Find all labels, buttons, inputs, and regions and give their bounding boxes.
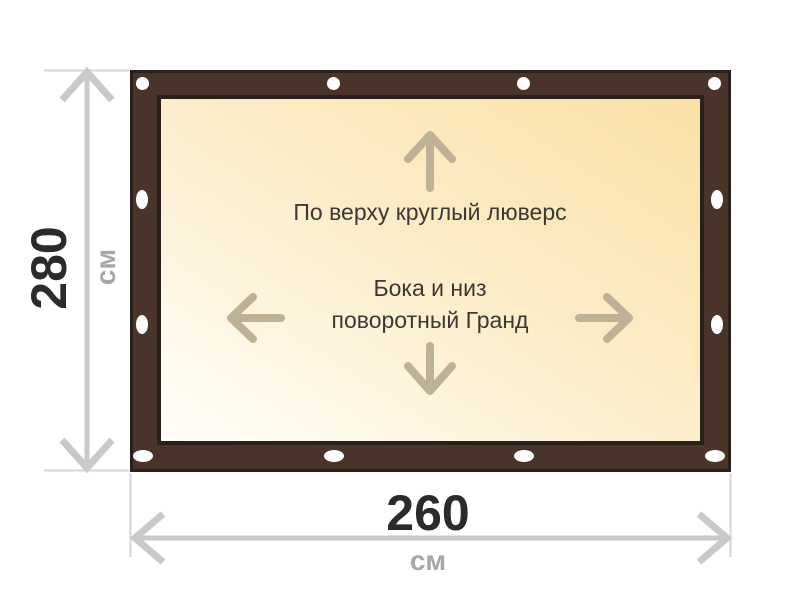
width-unit-label: см bbox=[128, 548, 728, 574]
grommet-icon bbox=[711, 315, 723, 334]
top-attachment-label: По верху круглый люверс bbox=[160, 198, 700, 226]
grommet-icon bbox=[136, 315, 148, 334]
grommet-icon bbox=[705, 450, 725, 462]
height-unit-label: см bbox=[93, 217, 119, 317]
grommet-icon bbox=[517, 77, 530, 90]
grommet-icon bbox=[133, 450, 153, 462]
banner-canvas bbox=[157, 95, 704, 445]
side-bottom-attachment-label-line2: поворотный Гранд bbox=[160, 306, 700, 334]
grommet-icon bbox=[327, 77, 340, 90]
side-bottom-attachment-label-line1: Бока и низ bbox=[160, 274, 700, 302]
grommet-icon bbox=[136, 77, 149, 90]
height-value-label: 280 bbox=[25, 168, 73, 368]
product-preview: По верху круглый люверс Бока и низ повор… bbox=[0, 0, 800, 600]
grommet-icon bbox=[514, 450, 534, 462]
grommet-icon bbox=[711, 190, 723, 209]
grommet-icon bbox=[324, 450, 344, 462]
grommet-icon bbox=[708, 77, 721, 90]
grommet-icon bbox=[136, 190, 148, 209]
width-value-label: 260 bbox=[128, 489, 728, 537]
